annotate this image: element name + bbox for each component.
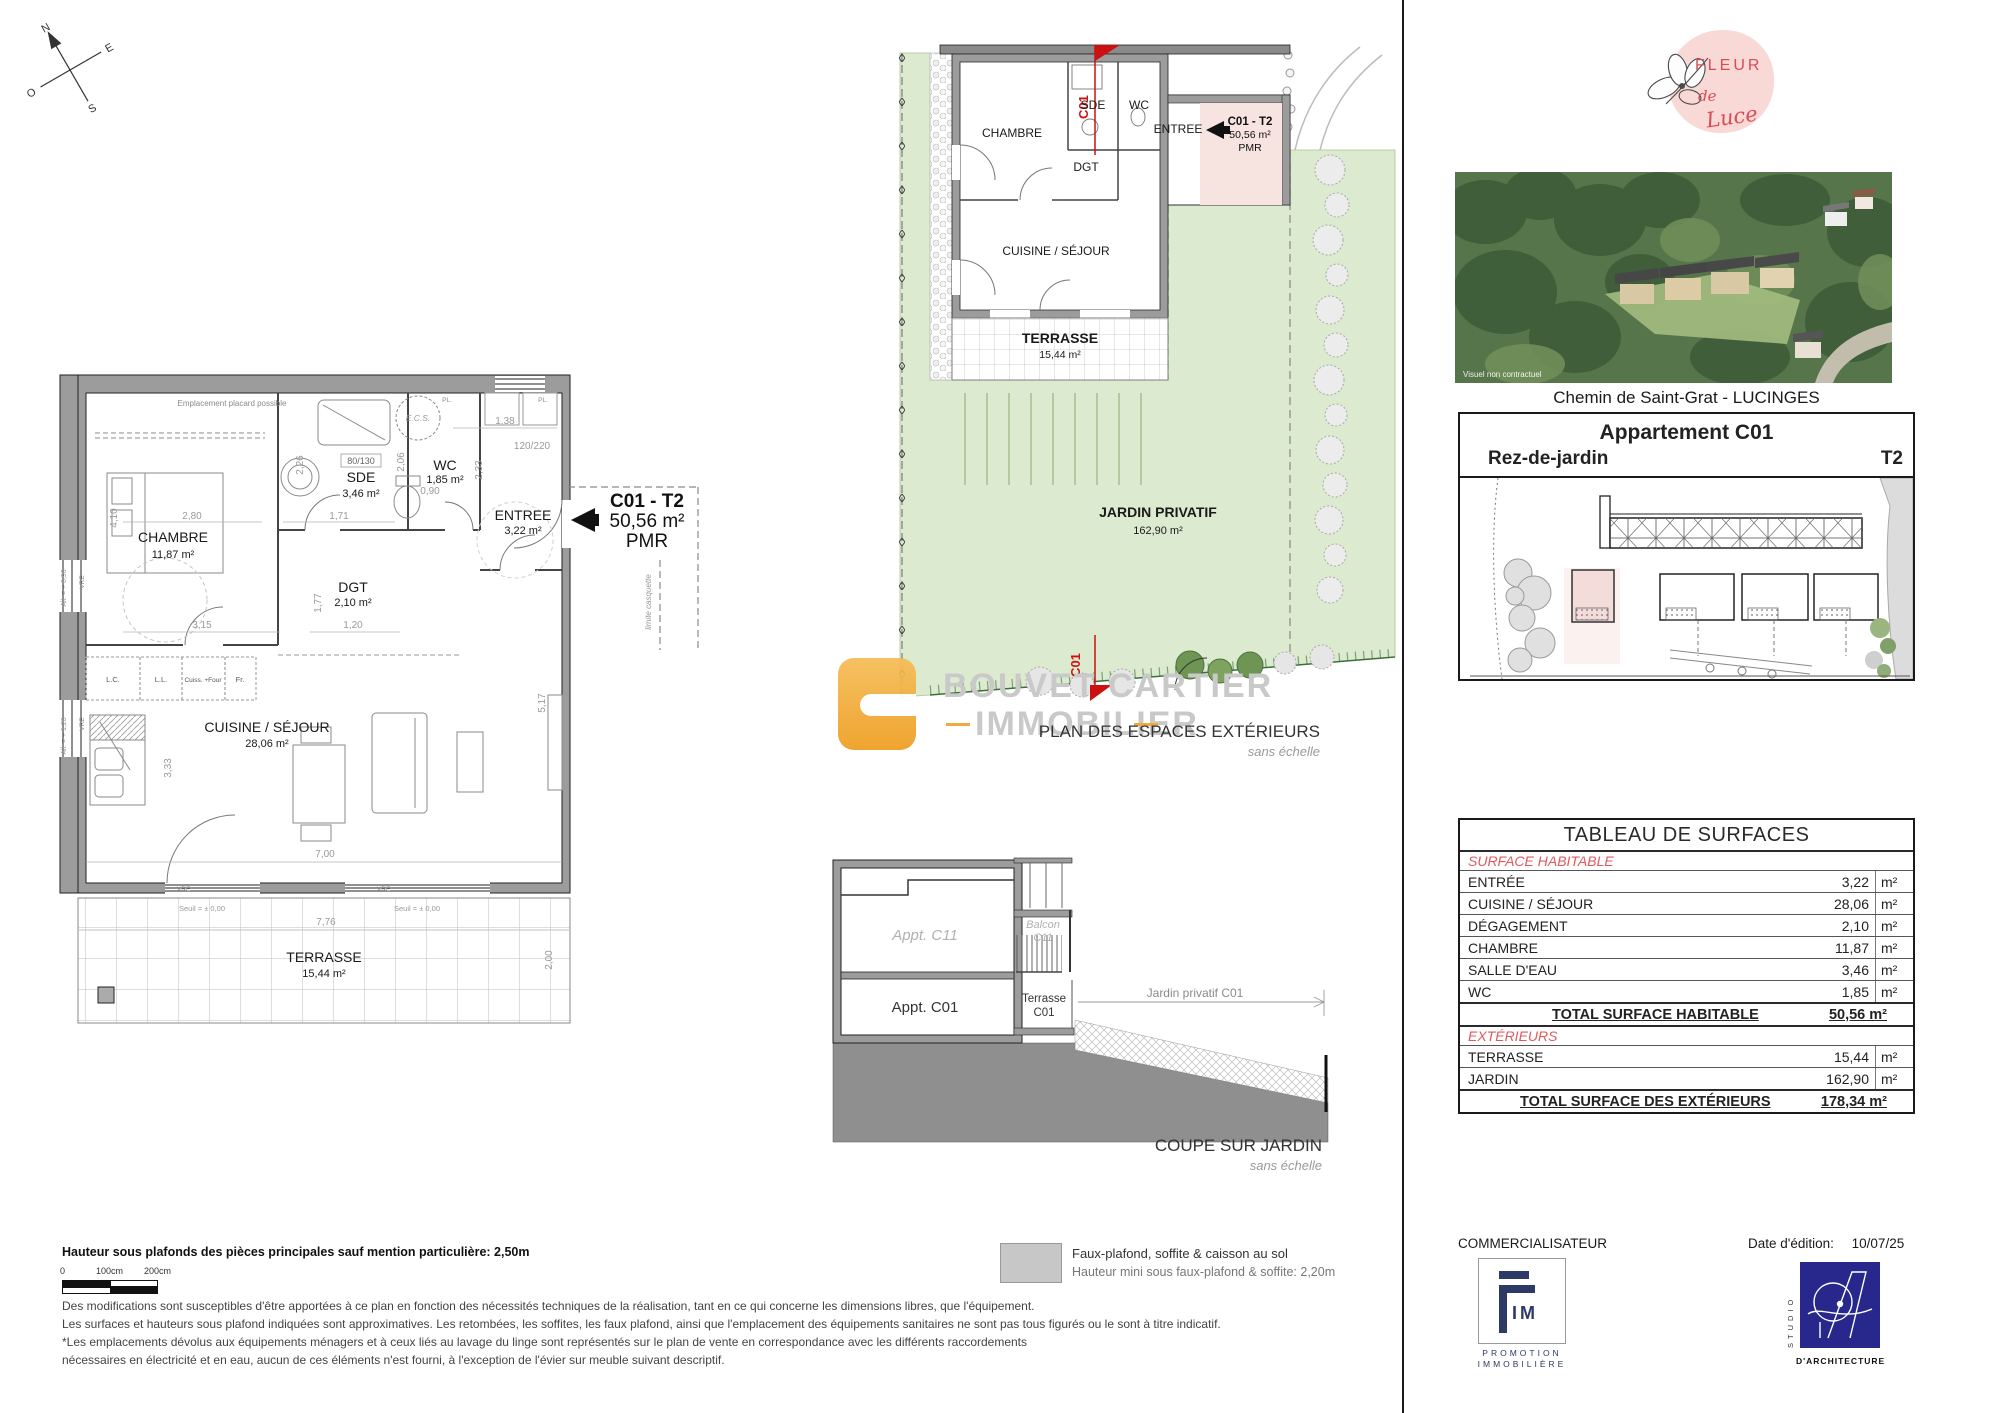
dim-315: 3,15 <box>192 620 212 631</box>
coupe-terrasse-2: C01 <box>1033 1007 1054 1019</box>
note-seuil-1: Seuil = ± 0,00 <box>179 904 225 913</box>
row-unit: m² <box>1875 1068 1913 1089</box>
coupe-balcon-1: Balcon <box>1026 919 1060 931</box>
row-unit: m² <box>1875 893 1913 914</box>
legend-line2: Hauteur mini sous faux-plafond & soffite… <box>1072 1265 1335 1279</box>
row-value: 3,22 <box>1799 874 1869 890</box>
section-drawing: Appt. C11 Appt. C01 Balcon C11 Terrasse … <box>820 850 1345 1185</box>
dim-233: 2,33 <box>474 460 485 480</box>
disclaimer-line3: *Les emplacements dévolus aux équipement… <box>62 1333 1332 1351</box>
dim-280: 2,80 <box>182 511 202 522</box>
row-value: 2,10 <box>1799 918 1869 934</box>
row-label: WC <box>1460 984 1799 1000</box>
table-row: CUISINE / SÉJOUR 28,06 m² <box>1460 892 1913 914</box>
note-seuil-2: Seuil = ± 0,00 <box>394 904 440 913</box>
windows <box>58 376 571 894</box>
site-plan <box>1460 478 1913 679</box>
commercialisateur-label: COMMERCIALISATEUR <box>1458 1236 1607 1251</box>
dim-171: 1,71 <box>329 511 349 522</box>
partitions <box>86 393 562 645</box>
dim-200: 2,00 <box>544 950 555 970</box>
edition-date-value: 10/07/25 <box>1852 1236 1905 1251</box>
room-sde: SDE <box>347 469 376 485</box>
room-chambre-area: 11,87 m² <box>152 549 195 561</box>
coupe-jardin-dim: Jardin privatif C01 <box>1147 986 1244 1000</box>
g-room-wc: WC <box>1129 98 1149 112</box>
g-jardin-area: 162,90 m² <box>1133 525 1183 537</box>
room-cuisine: CUISINE / SÉJOUR <box>204 719 329 735</box>
row-value: 11,87 <box>1799 940 1869 956</box>
room-wc: WC <box>433 457 456 473</box>
compass-s: S <box>86 102 98 116</box>
dim-090: 0,90 <box>420 486 440 497</box>
brand-logo: FLEUR de Luce <box>1638 25 1798 150</box>
fim-line2: IMMOBILIÈRE <box>1472 1359 1572 1369</box>
table-row: ENTRÉE 3,22 m² <box>1460 870 1913 892</box>
scale-0: 0 <box>60 1266 65 1276</box>
total-value: 50,56 m² <box>1801 1007 1913 1023</box>
coupe-balcon-2: C11 <box>1033 932 1052 944</box>
garden-plan-title: PLAN DES ESPACES EXTÉRIEURS <box>1020 722 1320 742</box>
coupe-appt-c11: Appt. C11 <box>891 927 958 944</box>
unit-header-box: Appartement C01 Rez-de-jardin T2 <box>1458 412 1915 681</box>
edition-date-label: Date d'édition: <box>1748 1236 1834 1251</box>
dim-776: 7,76 <box>316 917 336 928</box>
room-terrasse: TERRASSE <box>286 949 361 965</box>
row-unit: m² <box>1875 1046 1913 1067</box>
kitchen-ll: L.L. <box>155 675 168 684</box>
brand-name-2: de <box>1698 87 1716 105</box>
dim-410: 4,10 <box>109 508 120 528</box>
site-trees <box>1504 559 1555 672</box>
disclaimer-line2: Les surfaces et hauteurs sous plafond in… <box>62 1315 1332 1333</box>
note-all090: All. = + 0,90 <box>61 569 68 606</box>
dim-80-130: 80/130 <box>347 456 375 466</box>
g-room-chambre: CHAMBRE <box>982 126 1042 140</box>
dim-700: 7,00 <box>315 849 335 860</box>
kitchen-fr: Fr. <box>236 675 245 684</box>
row-label: CUISINE / SÉJOUR <box>1460 896 1799 912</box>
total-exterieurs-row: TOTAL SURFACE DES EXTÉRIEURS 178,34 m² <box>1460 1089 1913 1112</box>
row-unit: m² <box>1875 959 1913 980</box>
g-room-cuisine: CUISINE / SÉJOUR <box>1002 243 1110 258</box>
g-terrasse: TERRASSE <box>1022 330 1098 346</box>
row-unit: m² <box>1875 937 1913 958</box>
table-row: DÉGAGEMENT 2,10 m² <box>1460 914 1913 936</box>
room-cuisine-area: 28,06 m² <box>245 738 289 750</box>
g-badge-unit: C01 - T2 <box>1228 116 1273 128</box>
scale-200: 200cm <box>144 1266 171 1276</box>
dim-120220: 120/220 <box>514 441 551 452</box>
dim-206: 2,06 <box>396 452 407 472</box>
compass-n: N <box>40 21 53 35</box>
legend-swatch <box>1000 1243 1062 1283</box>
disclaimer: Des modifications sont susceptibles d'êt… <box>62 1297 1332 1369</box>
row-label: DÉGAGEMENT <box>1460 918 1799 934</box>
table-row: WC 1,85 m² <box>1460 980 1913 1002</box>
studio-logo <box>1800 1262 1880 1348</box>
total-habitable-row: TOTAL SURFACE HABITABLE 50,56 m² <box>1460 1002 1913 1025</box>
total-label: TOTAL SURFACE DES EXTÉRIEURS <box>1460 1094 1801 1110</box>
section-exterieurs: EXTÉRIEURS <box>1460 1025 1913 1045</box>
door-arcs <box>167 495 562 883</box>
road <box>1283 47 1382 150</box>
g-badge-pmr: PMR <box>1238 142 1262 154</box>
dim-226: 2,26 <box>295 455 306 475</box>
note-pl-2: PL. <box>538 397 548 404</box>
dim-138: 1,38 <box>495 416 515 427</box>
kitchen-four: Cuiss. +Four <box>184 677 222 684</box>
panel-divider <box>1402 0 1404 1413</box>
compass-rose-icon: N S E O <box>20 20 120 120</box>
room-chambre: CHAMBRE <box>138 529 208 545</box>
row-unit: m² <box>1875 871 1913 892</box>
coupe-appt-c01: Appt. C01 <box>892 999 959 1016</box>
compass-e: E <box>103 41 115 55</box>
height-note: Hauteur sous plafonds des pièces princip… <box>62 1245 530 1259</box>
g-room-entree: ENTREE <box>1154 122 1203 136</box>
row-value: 3,46 <box>1799 962 1869 978</box>
row-label: SALLE D'EAU <box>1460 962 1799 978</box>
total-value: 178,34 m² <box>1801 1094 1913 1110</box>
row-label: ENTRÉE <box>1460 874 1799 890</box>
note-vre-1: VRE <box>177 886 191 893</box>
row-label: JARDIN <box>1460 1071 1799 1087</box>
g-badge-area: 50,56 m² <box>1229 129 1271 141</box>
unit-title: Appartement C01 <box>1460 414 1913 445</box>
studio-vertical: STUDIO <box>1786 1264 1795 1348</box>
table-row: CHAMBRE 11,87 m² <box>1460 936 1913 958</box>
legend-line1: Faux-plafond, soffite & caisson au sol <box>1072 1246 1288 1261</box>
note-pl-1: PL. <box>442 397 452 404</box>
room-entree-area: 3,22 m² <box>504 525 542 537</box>
row-label: CHAMBRE <box>1460 940 1799 956</box>
room-terrasse-area: 15,44 m² <box>302 968 346 980</box>
note-vre-2: VRE <box>377 886 391 893</box>
g-terrasse-area: 15,44 m² <box>1039 349 1081 361</box>
badge-pmr: PMR <box>626 531 668 552</box>
kitchen-lc: L.C. <box>106 675 120 684</box>
row-label: TERRASSE <box>1460 1049 1799 1065</box>
room-dgt: DGT <box>338 579 368 595</box>
g-room-dgt: DGT <box>1073 160 1099 174</box>
floor-plan: Emplacement placard possible CHAMBRE 11,… <box>55 370 715 1035</box>
note-ecs: E.C.S. <box>406 413 431 423</box>
garden-plan: C01 C01 CHAMBRE SDE WC ENTREE DGT CUISIN… <box>890 35 1405 775</box>
unit-header: Appartement C01 Rez-de-jardin T2 <box>1460 414 1913 478</box>
g-room-sde: SDE <box>1081 98 1106 112</box>
surface-table: TABLEAU DE SURFACES SURFACE HABITABLE EN… <box>1458 818 1915 1114</box>
room-wc-area: 1,85 m² <box>426 474 464 486</box>
section-habitable: SURFACE HABITABLE <box>1460 850 1913 870</box>
note-limite: limite casquette <box>644 574 653 630</box>
unit-level: Rez-de-jardin <box>1488 448 1608 470</box>
row-value: 28,06 <box>1799 896 1869 912</box>
coupe-terrasse-1: Terrasse <box>1022 993 1066 1005</box>
dim-517: 5,17 <box>537 693 548 713</box>
row-value: 162,90 <box>1799 1071 1869 1087</box>
dim-120: 1,20 <box>343 620 363 631</box>
compass-o: O <box>25 86 39 101</box>
dim-177: 1,77 <box>313 593 324 613</box>
row-value: 1,85 <box>1799 984 1869 1000</box>
row-unit: m² <box>1875 915 1913 936</box>
fixtures <box>86 393 562 841</box>
note-all120: All. = + 1,20 <box>61 717 68 754</box>
note-vre-3: VRE <box>79 575 86 589</box>
badge-area: 50,56 m² <box>610 511 685 532</box>
studio-label: D'ARCHITECTURE <box>1796 1356 1884 1366</box>
watermark-line1: BOUVET CARTIER <box>943 667 1273 706</box>
g-jardin: JARDIN PRIVATIF <box>1099 504 1217 520</box>
plan-sheet: N S E O <box>0 0 2000 1413</box>
fim-im: IM <box>1512 1303 1538 1324</box>
unit-type: T2 <box>1881 448 1903 470</box>
surface-table-title: TABLEAU DE SURFACES <box>1460 820 1913 850</box>
fim-logo: IM <box>1478 1258 1566 1344</box>
row-value: 15,44 <box>1799 1049 1869 1065</box>
table-row: JARDIN 162,90 m² <box>1460 1067 1913 1089</box>
watermark-logo-icon <box>838 658 916 750</box>
site-dividers <box>1698 620 1846 656</box>
scale-100: 100cm <box>96 1266 123 1276</box>
note-placard: Emplacement placard possible <box>178 399 287 408</box>
scale-bar: 0 100cm 200cm <box>60 1266 190 1298</box>
total-label: TOTAL SURFACE HABITABLE <box>1460 1007 1801 1023</box>
disclaimer-line1: Des modifications sont susceptibles d'êt… <box>62 1297 1332 1315</box>
room-entree: ENTREE <box>495 507 552 523</box>
row-unit: m² <box>1875 981 1913 1002</box>
brand-name-1: FLEUR <box>1695 57 1762 75</box>
room-dgt-area: 2,10 m² <box>334 597 372 609</box>
room-sde-area: 3,46 m² <box>342 488 380 500</box>
table-row: TERRASSE 15,44 m² <box>1460 1045 1913 1067</box>
dim-333: 3,33 <box>163 758 174 778</box>
coupe-title: COUPE SUR JARDIN <box>1122 1136 1322 1156</box>
photo-caption: Visuel non contractuel <box>1463 370 1542 379</box>
badge-unit: C01 - T2 <box>610 491 684 512</box>
entry-arrow-icon <box>571 508 599 532</box>
coupe-subtitle: sans échelle <box>1122 1158 1322 1173</box>
project-photo: Visuel non contractuel <box>1455 172 1892 383</box>
edition-date: Date d'édition: 10/07/25 <box>1748 1236 1904 1251</box>
note-vre-4: VRE <box>79 717 86 731</box>
fim-line1: PROMOTION <box>1472 1348 1572 1358</box>
table-row: SALLE D'EAU 3,46 m² <box>1460 958 1913 980</box>
disclaimer-line4: nécessaires en électricité et en eau, au… <box>62 1351 1332 1369</box>
garden-plan-subtitle: sans échelle <box>1020 744 1320 759</box>
project-address: Chemin de Saint-Grat - LUCINGES <box>1458 388 1915 408</box>
